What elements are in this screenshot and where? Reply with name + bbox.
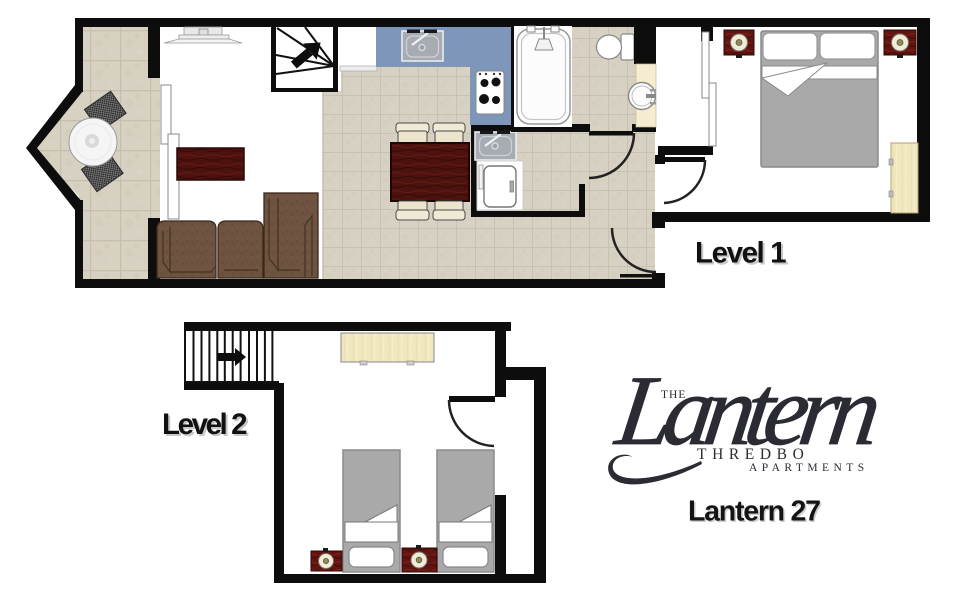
svg-text:APARTMENTS: APARTMENTS — [749, 462, 867, 474]
svg-text:Level 2: Level 2 — [162, 408, 248, 441]
svg-text:Level 1: Level 1 — [695, 237, 787, 270]
svg-text:THREDBO: THREDBO — [697, 446, 809, 463]
svg-text:Lantern 27: Lantern 27 — [688, 496, 821, 528]
